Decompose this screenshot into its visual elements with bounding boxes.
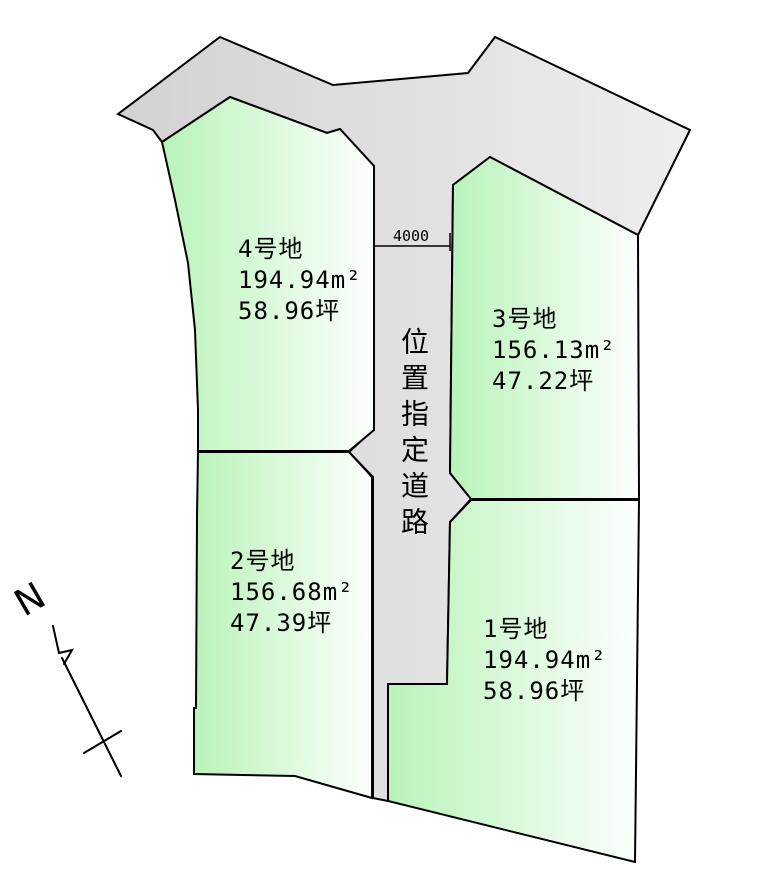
lot-3-area-tsubo: 47.22坪 [492,366,616,397]
north-arrow-shaft [62,658,121,776]
road-label: 位置指定道路 [393,327,433,543]
lot-4-label: 4号地 194.94m² 58.96坪 [238,234,362,327]
lot-1-area-m2: 194.94m² [483,645,607,676]
dimension-label: 4000 [387,227,435,245]
lot-2-name: 2号地 [230,546,354,577]
north-arrow [53,626,121,776]
site-plan-drawing [0,0,762,885]
lot-3-name: 3号地 [492,304,616,335]
lot-1-area-tsubo: 58.96坪 [483,676,607,707]
lot-4-area-m2: 194.94m² [238,265,362,296]
lot-4-area-tsubo: 58.96坪 [238,296,362,327]
north-arrow-tick [84,731,121,753]
lot-3-label: 3号地 156.13m² 47.22坪 [492,304,616,397]
lot-1-label: 1号地 194.94m² 58.96坪 [483,614,607,707]
lot-2-label: 2号地 156.68m² 47.39坪 [230,546,354,639]
lot-2-area-tsubo: 47.39坪 [230,608,354,639]
lot-4-name: 4号地 [238,234,362,265]
site-plan: 4号地 194.94m² 58.96坪 3号地 156.13m² 47.22坪 … [0,0,762,885]
lot-1-name: 1号地 [483,614,607,645]
lot-3-area-m2: 156.13m² [492,335,616,366]
lot-2-area-m2: 156.68m² [230,577,354,608]
